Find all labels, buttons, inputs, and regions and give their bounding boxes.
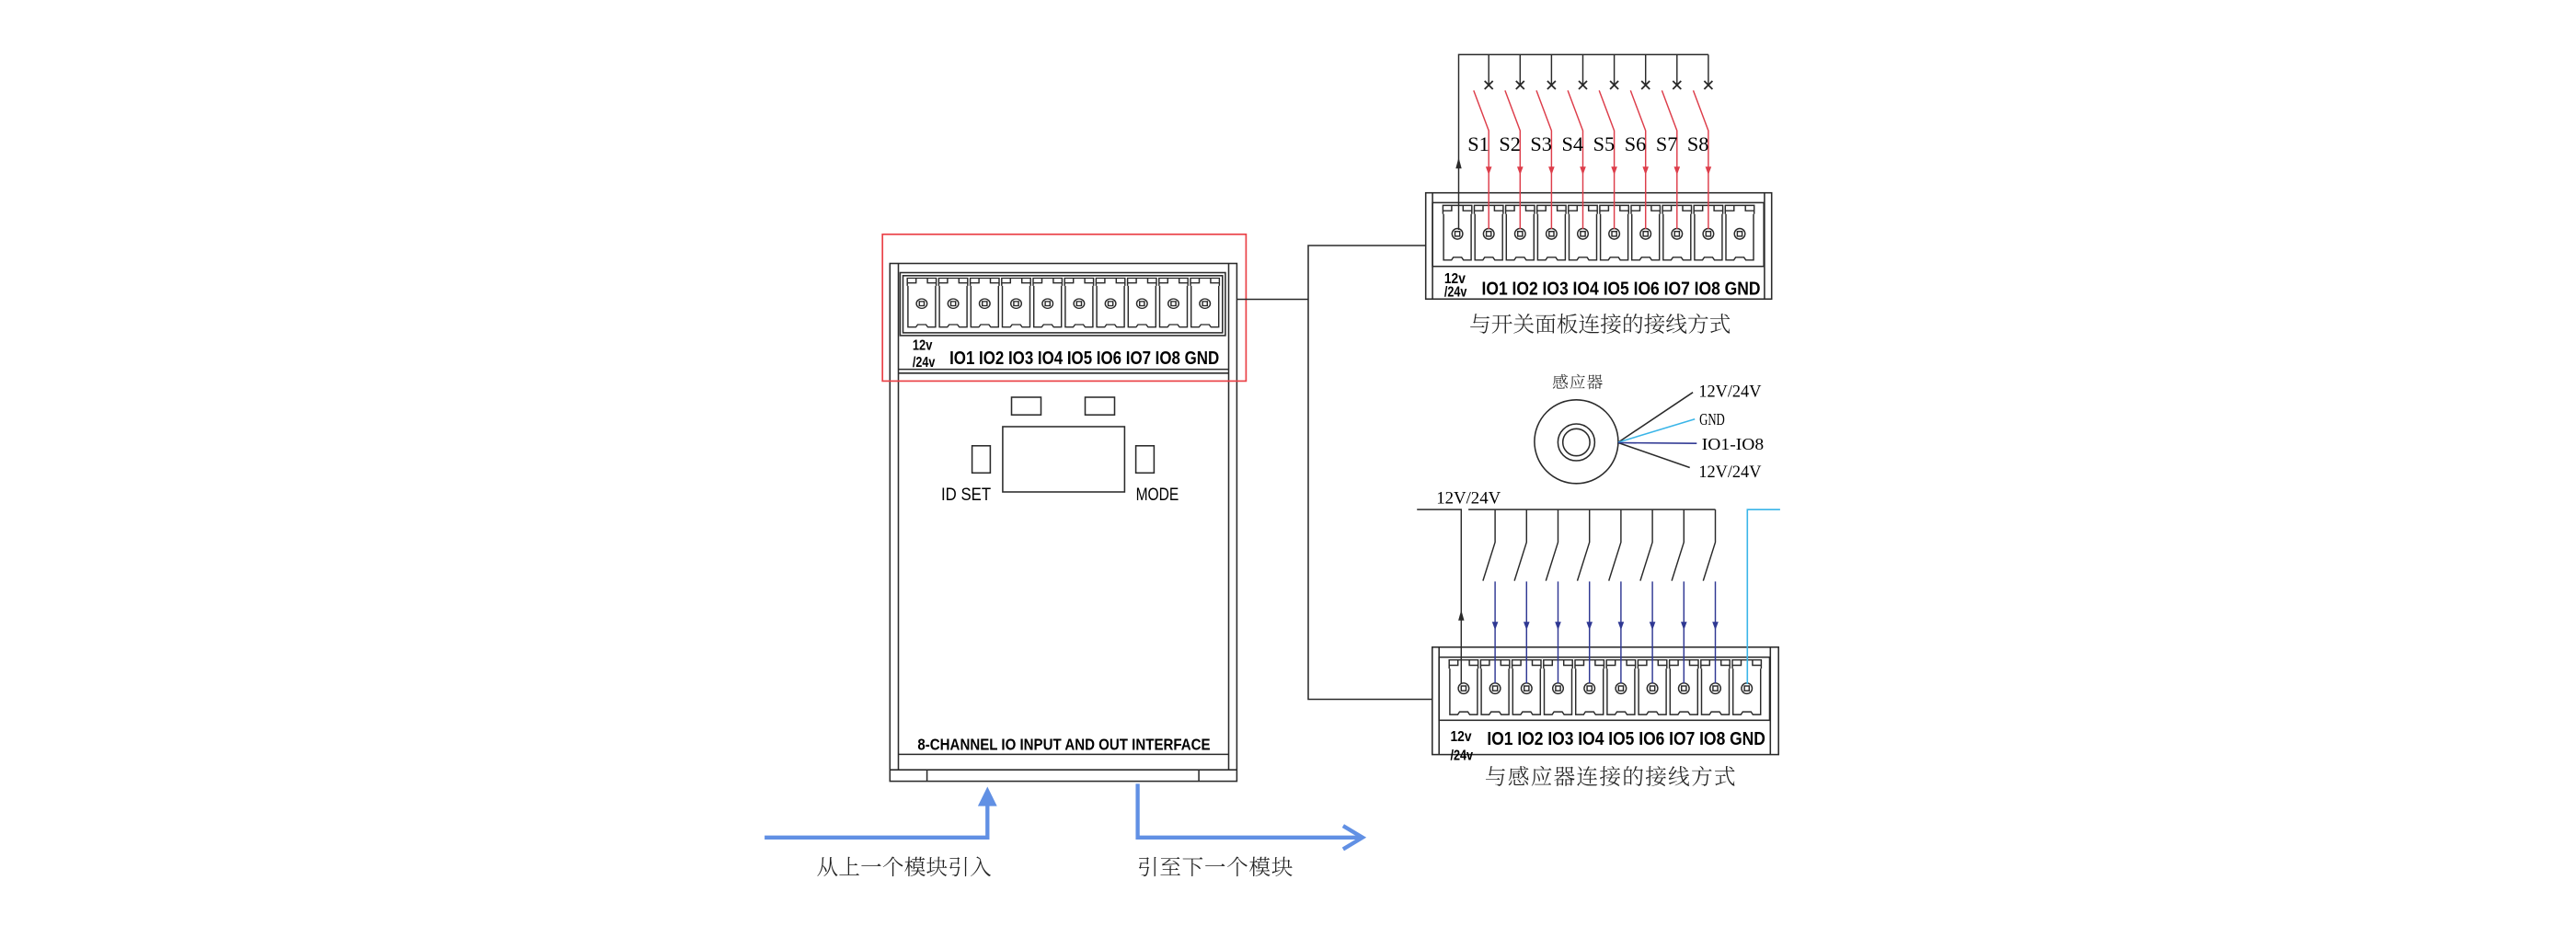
svg-text:S2: S2 [1499,132,1521,155]
svg-text:IO1 IO2 IO3 IO4 IO5 IO6 IO7 IO: IO1 IO2 IO3 IO4 IO5 IO6 IO7 IO8 GND [1487,729,1765,749]
svg-text:/24v: /24v [1451,748,1474,764]
svg-text:GND: GND [1699,410,1725,429]
svg-text:12v: 12v [913,338,933,354]
svg-text:S8: S8 [1687,132,1709,155]
svg-text:S7: S7 [1656,132,1678,155]
svg-text:IO1 IO2 IO3 IO4 IO5 IO6 IO7 IO: IO1 IO2 IO3 IO4 IO5 IO6 IO7 IO8 GND [1482,280,1761,300]
svg-text:S6: S6 [1625,132,1647,155]
svg-text:IO1 IO2 IO3 IO4 IO5 IO6 IO7 IO: IO1 IO2 IO3 IO4 IO5 IO6 IO7 IO8 GND [949,349,1219,369]
svg-text:12V/24V: 12V/24V [1698,383,1761,402]
svg-text:S1: S1 [1467,132,1489,155]
svg-text:8-CHANNEL IO INPUT AND OUT INT: 8-CHANNEL IO INPUT AND OUT INTERFACE [917,736,1210,754]
svg-text:S3: S3 [1530,132,1552,155]
svg-text:12V/24V: 12V/24V [1698,463,1761,482]
svg-text:12v: 12v [1451,729,1472,745]
svg-text:/24v: /24v [913,355,935,371]
svg-text:/24v: /24v [1444,285,1467,301]
svg-text:S5: S5 [1593,132,1616,155]
svg-text:ID SET: ID SET [941,486,991,505]
svg-text:12V/24V: 12V/24V [1436,489,1501,508]
svg-text:IO1-IO8: IO1-IO8 [1702,435,1764,453]
svg-text:S4: S4 [1562,132,1584,155]
svg-text:MODE: MODE [1136,486,1179,505]
